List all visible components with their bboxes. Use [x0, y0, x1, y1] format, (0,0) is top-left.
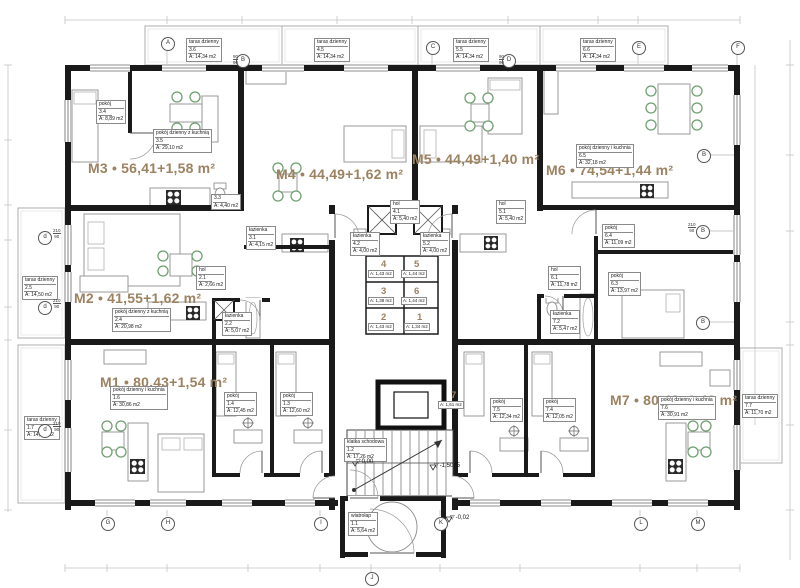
room-number: 1.6: [112, 395, 126, 403]
room-area: A: 14,34 m2: [582, 54, 614, 61]
room-name: taras dzienny: [455, 39, 487, 47]
room-label-5-1: hol5.1A: 5,40 m2: [496, 200, 526, 224]
room-number: 2.1: [198, 275, 212, 283]
room-area: A: 5,40 m2: [392, 216, 418, 223]
room-name: łazienka: [248, 227, 274, 235]
room-name: hol: [198, 267, 224, 275]
room-label-1-1: wiatrołap1.1A: 5,64 m2: [348, 512, 378, 536]
room-area: A: 4,15 m2: [248, 242, 274, 249]
axis-marker-bottom: M: [691, 517, 705, 531]
room-name: łazienka: [224, 313, 250, 321]
room-area: A: 2,66 m2: [198, 282, 224, 289]
room-number: 3.3: [213, 195, 227, 203]
apartment-label-m4: M4 • 44,49+1,62 m²: [276, 166, 403, 182]
window-dim-top: 210: [53, 421, 61, 426]
apartment-label-m3: M3 • 56,41+1,58 m²: [88, 160, 215, 176]
elevation-triangle-icon: ▽: [434, 463, 439, 469]
window-dimension-mark: 21090: [53, 298, 61, 309]
room-area: A: 30,91 m2: [660, 412, 714, 419]
axis-marker-left: d: [38, 424, 52, 438]
axis-marker-right: B: [697, 149, 711, 163]
room-area: A: 14,50 m2: [24, 292, 56, 299]
room-area: A: 5,47 m2: [552, 326, 578, 333]
storage-locker-area-1: A: 1,34 m2: [404, 323, 430, 331]
room-area: A: 4,00 m2: [352, 248, 378, 255]
window-dim-bottom: 90: [53, 233, 61, 239]
room-name: pokój: [610, 273, 639, 281]
room-name: pokój: [604, 225, 633, 233]
room-number: 5.1: [498, 209, 512, 217]
axis-marker-bottom: L: [634, 517, 648, 531]
room-name: taras dzienny: [582, 39, 614, 47]
window-dimension-mark: 21090: [53, 421, 61, 432]
room-name: pokój dzienny z kuchnią: [155, 130, 210, 138]
window-dim-bottom: 90: [688, 227, 696, 233]
storage-locker-area-4: A: 1,43 m2: [368, 270, 394, 278]
window-dim-top: 90: [499, 54, 504, 59]
floorplan-text-overlay: M3 • 56,41+1,58 m²M4 • 44,49+1,62 m²M5 •…: [0, 0, 800, 588]
room-number: 7.4: [545, 407, 559, 415]
storage-locker-6: 6: [414, 286, 419, 297]
room-number: 1.4: [226, 401, 240, 409]
room-label-6-4: pokój6.4A: 11,09 m2: [602, 224, 635, 248]
room-number: 4.5: [316, 47, 330, 55]
room-number: 5.2: [422, 241, 436, 249]
room-name: taras dzienny: [24, 277, 56, 285]
room-name: taras dzienny: [316, 39, 348, 47]
room-number: 5.5: [455, 47, 469, 55]
room-area: A: 12,60 m2: [282, 408, 311, 415]
room-number: 7.2: [552, 319, 566, 327]
room-number: 7.7: [744, 403, 758, 411]
room-label-1-4: pokój1.4A: 12,45 m2: [224, 392, 257, 416]
room-label-4-2: łazienka4.2A: 4,00 m2: [350, 232, 380, 256]
room-label-7-5: pokój7.5A: 12,34 m2: [490, 398, 523, 422]
room-number: 1.2: [346, 447, 360, 455]
room-area: A: 14,34 m2: [455, 54, 487, 61]
apartment-label-m2: M2 • 41,55+1,62 m²: [74, 290, 201, 306]
storage-locker-area-6: A: 1,44 m2: [401, 297, 427, 305]
room-name: pokój dzienny i kuchnia: [112, 387, 166, 395]
room-label-6-1: hol6.1A: 11,78 m2: [548, 266, 581, 290]
storage-locker-4: 4: [381, 259, 386, 270]
floor-plan: M3 • 56,41+1,58 m²M4 • 44,49+1,62 m²M5 •…: [0, 0, 800, 588]
room-number: 7.5: [492, 407, 506, 415]
room-area: A: 4,40 m2: [213, 203, 239, 210]
room-area: A: 12,34 m2: [492, 414, 521, 421]
room-area: A: 5,40 m2: [498, 216, 524, 223]
room-label-2-1: hol2.1A: 2,66 m2: [196, 266, 226, 290]
room-area: A: 5,07 m2: [224, 328, 250, 335]
room-area: A: 11,70 m2: [744, 410, 776, 417]
room-label-5-2: łazienka5.2A: 4,00 m2: [420, 232, 450, 256]
axis-marker-bottom: G: [101, 517, 115, 531]
room-label-1-3: pokój1.3A: 12,60 m2: [280, 392, 313, 416]
room-number: 1.3: [282, 401, 296, 409]
elevation-value: -1,5075: [440, 463, 460, 469]
storage-locker-2: 2: [381, 312, 386, 323]
room-label-2-5: taras dzienny2.5A: 14,50 m2: [22, 276, 58, 300]
room-area: A: 4,00 m2: [422, 248, 448, 255]
window-dim-bottom: 90: [53, 426, 61, 432]
room-label-4-5: taras dzienny4.5A: 14,34 m2: [314, 38, 350, 62]
room-area: A: 12,05 m2: [545, 414, 574, 421]
storage-locker-7: 7: [451, 390, 456, 401]
room-label-1-6: pokój dzienny i kuchnia1.6A: 30,86 m2: [110, 386, 168, 410]
room-number: 3.6: [188, 47, 202, 55]
room-number: 7.6: [660, 405, 674, 413]
axis-marker-bottom: J: [365, 572, 379, 586]
room-name: klatka schodowa: [346, 439, 385, 447]
window-dim-bottom: 90: [233, 59, 238, 65]
axis-marker-left: d: [38, 231, 52, 245]
axis-marker-left: d: [38, 301, 52, 315]
room-name: łazienka: [422, 233, 448, 241]
axis-marker-top: B: [236, 54, 250, 68]
room-label-6-3: pokój6.3A: 13,97 m2: [608, 272, 641, 296]
elevation-triangle-icon: ▽: [450, 515, 455, 521]
room-number: 3.4: [98, 109, 112, 117]
storage-locker-area-5: A: 1,44 m2: [401, 270, 427, 278]
room-number: 2.4: [114, 317, 128, 325]
elevation-value: 0,00: [362, 459, 374, 465]
room-name: pokój dzienny z kuchnią: [114, 309, 169, 317]
window-dimension-mark: 9090: [233, 54, 238, 65]
room-name: łazienka: [352, 233, 378, 241]
axis-marker-bottom: K: [434, 517, 448, 531]
room-label-3-5: pokój dzienny z kuchnią3.5A: 29,10 m2: [153, 129, 212, 153]
room-label-7-6: pokój dzienny i kuchnia7.6A: 30,91 m2: [658, 396, 716, 420]
room-area: A: 32,18 m2: [578, 160, 632, 167]
room-number: 6.1: [550, 275, 564, 283]
room-label-5-5: taras dzienny5.5A: 14,34 m2: [453, 38, 489, 62]
axis-marker-top: A: [161, 37, 175, 51]
room-area: A: 29,10 m2: [155, 145, 210, 152]
room-label-3-1: łazienka3.1A: 4,15 m2: [246, 226, 276, 250]
apartment-label-m5: M5 • 44,49+1,40 m²: [412, 151, 539, 167]
room-name: pokój: [98, 101, 124, 109]
room-area: A: 14,34 m2: [316, 54, 348, 61]
room-area: A: 8,89 m2: [98, 116, 124, 123]
room-name: wiatrołap: [350, 513, 376, 521]
room-label-7-4: pokój7.4A: 12,05 m2: [543, 398, 576, 422]
storage-locker-5: 5: [414, 259, 419, 270]
room-name: łazienka: [552, 311, 578, 319]
room-area: A: 14,34 m2: [188, 54, 220, 61]
elevation-mark: ▽-1,5075: [434, 462, 460, 469]
room-name: pokój: [492, 399, 521, 407]
axis-marker-right: B: [696, 225, 710, 239]
room-label-4-1: hol4.1A: 5,40 m2: [390, 200, 420, 224]
elevation-value: -0,02: [456, 515, 470, 521]
axis-marker-top: F: [731, 41, 745, 55]
window-dim-bottom: 90: [499, 59, 504, 65]
room-label-6-6: taras dzienny6.6A: 14,34 m2: [580, 38, 616, 62]
elevation-mark: ▽-0,02: [450, 514, 469, 521]
window-dimension-mark: 9090: [499, 54, 504, 65]
room-name: pokój dzienny i kuchnia: [660, 397, 714, 405]
window-dim-top: 210: [53, 228, 61, 233]
room-name: hol: [498, 201, 524, 209]
room-label-3-6: taras dzienny3.6A: 14,34 m2: [186, 38, 222, 62]
room-number: 2.2: [224, 321, 238, 329]
storage-locker-area-2: A: 1,43 m2: [368, 323, 394, 331]
axis-marker-top: C: [426, 41, 440, 55]
room-area: A: 11,78 m2: [550, 282, 579, 289]
room-area: A: 12,45 m2: [226, 408, 255, 415]
axis-marker-top: D: [502, 54, 516, 68]
room-number: 3.1: [248, 235, 262, 243]
room-number: 1.1: [350, 521, 364, 529]
storage-locker-area-3: A: 1,38 m2: [368, 297, 394, 305]
room-name: taras dzienny: [188, 39, 220, 47]
room-area: A: 13,97 m2: [610, 288, 639, 295]
room-name: pokój dzienny i kuchnia: [578, 145, 632, 153]
window-dim-top: 90: [233, 54, 238, 59]
window-dimension-mark: 21090: [53, 228, 61, 239]
room-label-7-2: łazienka7.2A: 5,47 m2: [550, 310, 580, 334]
elevation-triangle-icon: ▽: [356, 459, 361, 465]
room-name: hol: [550, 267, 579, 275]
room-area: A: 20,98 m2: [114, 324, 169, 331]
room-label-7-7: taras dzienny7.7A: 11,70 m2: [742, 394, 778, 418]
window-dim-top: 210: [688, 222, 696, 227]
room-number: 4.2: [352, 241, 366, 249]
room-name: hol: [392, 201, 418, 209]
window-dim-top: 210: [53, 298, 61, 303]
room-label-2-4: pokój dzienny z kuchnią2.4A: 20,98 m2: [112, 308, 171, 332]
room-label-3-4: pokój3.4A: 8,89 m2: [96, 100, 126, 124]
window-dim-bottom: 90: [53, 303, 61, 309]
storage-locker-area-7: A: 1,61 m2: [438, 401, 464, 409]
room-name: pokój: [282, 393, 311, 401]
room-name: pokój: [226, 393, 255, 401]
storage-locker-3: 3: [381, 286, 386, 297]
room-area: A: 30,86 m2: [112, 402, 166, 409]
elevation-mark: ▽0,00: [356, 458, 373, 465]
storage-locker-1: 1: [417, 312, 422, 323]
room-number: 6.4: [604, 233, 618, 241]
axis-marker-bottom: H: [161, 517, 175, 531]
axis-marker-bottom: I: [314, 517, 328, 531]
room-number: 6.5: [578, 153, 592, 161]
axis-marker-right: B: [696, 316, 710, 330]
room-number: 4.1: [392, 209, 406, 217]
room-area: A: 5,64 m2: [350, 528, 376, 535]
room-number: 2.5: [24, 285, 38, 293]
window-dimension-mark: 21090: [688, 222, 696, 233]
room-area: A: 11,09 m2: [604, 240, 633, 247]
room-number: 6.6: [582, 47, 596, 55]
room-label-3-3: 3.3A: 4,40 m2: [211, 194, 241, 210]
room-name: taras dzienny: [744, 395, 776, 403]
room-label-2-2: łazienka2.2A: 5,07 m2: [222, 312, 252, 336]
room-label-6-5: pokój dzienny i kuchnia6.5A: 32,18 m2: [576, 144, 634, 168]
axis-marker-top: E: [632, 41, 646, 55]
room-name: pokój: [545, 399, 574, 407]
room-number: 3.5: [155, 138, 169, 146]
room-number: 6.3: [610, 281, 624, 289]
